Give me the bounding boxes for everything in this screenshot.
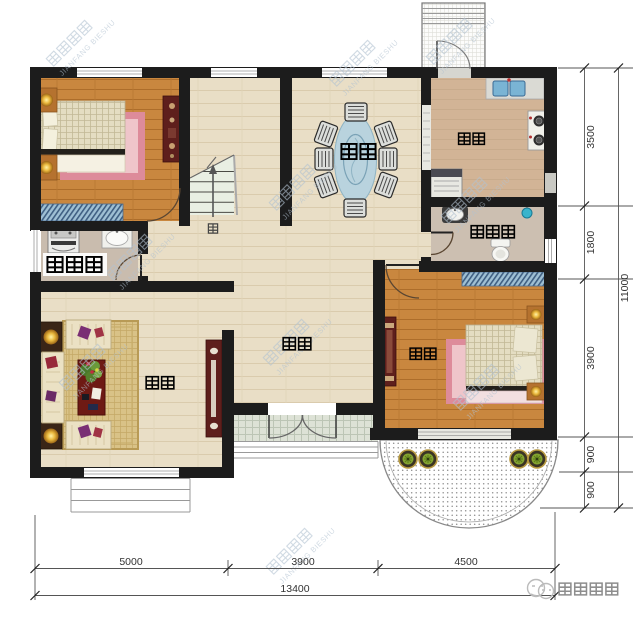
svg-text:11000: 11000 — [619, 274, 631, 303]
svg-text:3900: 3900 — [291, 556, 315, 568]
svg-text:900: 900 — [585, 446, 597, 464]
svg-text:4500: 4500 — [454, 556, 478, 568]
svg-text:3900: 3900 — [585, 346, 597, 370]
svg-text:900: 900 — [585, 481, 597, 499]
svg-text:5000: 5000 — [119, 556, 143, 568]
svg-text:3500: 3500 — [585, 125, 597, 149]
svg-text:1800: 1800 — [585, 231, 597, 255]
svg-text:13400: 13400 — [280, 583, 309, 595]
